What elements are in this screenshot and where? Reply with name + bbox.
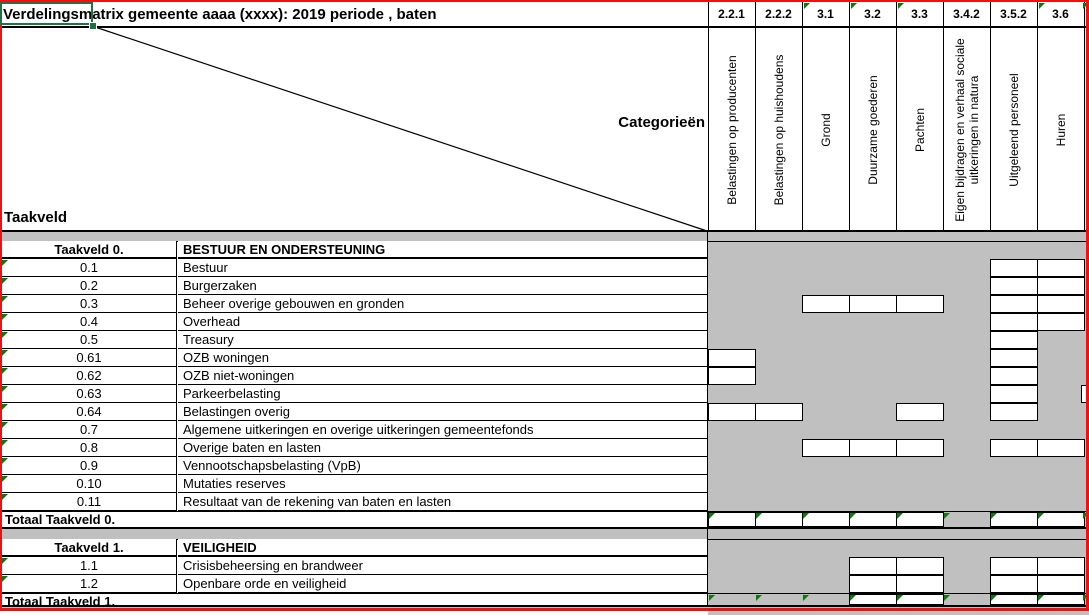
matrix-cell-open[interactable] — [849, 575, 897, 593]
matrix-cell-open[interactable] — [755, 512, 803, 527]
error-marker-icon — [2, 314, 8, 320]
error-marker-icon — [944, 513, 950, 519]
matrix-cell-open[interactable] — [896, 295, 944, 313]
column-label-cell[interactable]: Huren — [1037, 30, 1084, 230]
column-label-cell[interactable]: Uitgeleend personeel — [990, 30, 1037, 230]
taakveld-row: 0.63Parkeerbelasting — [2, 385, 707, 403]
row-name-cell[interactable]: Burgerzaken — [178, 277, 707, 295]
error-marker-icon — [2, 332, 8, 338]
column-label-cell[interactable]: Pachten — [896, 30, 943, 230]
matrix-cell-open[interactable] — [1037, 277, 1085, 295]
matrix-cell-open[interactable] — [990, 259, 1038, 277]
row-code-cell[interactable]: 1.1 — [2, 557, 177, 575]
row-name-cell[interactable]: Parkeerbelasting — [178, 385, 707, 403]
column-grid-line — [1084, 2, 1085, 232]
page-border-bottom — [0, 608, 1089, 611]
column-code-cell[interactable]: 2.2.1 — [708, 3, 755, 26]
row-name-cell[interactable]: OZB woningen — [178, 349, 707, 367]
row-name-cell[interactable]: Treasury — [178, 331, 707, 349]
section-code-cell[interactable]: Taakveld 1. — [2, 539, 177, 557]
section-header-row: Taakveld 1.VEILIGHEID — [2, 539, 707, 557]
taakveld-row: 0.2Burgerzaken — [2, 277, 707, 295]
matrix-cell-open[interactable] — [1037, 259, 1085, 277]
matrix-cell-open[interactable] — [849, 295, 897, 313]
matrix-cell-open[interactable] — [896, 557, 944, 575]
column-label-cell[interactable]: Belastingen op huishoudens — [755, 30, 802, 230]
taakveld-row: 0.61OZB woningen — [2, 349, 707, 367]
matrix-cell-open[interactable] — [1037, 575, 1085, 593]
taakveld-row: 0.62OZB niet-woningen — [2, 367, 707, 385]
total-row-label[interactable]: Totaal Taakveld 0. — [2, 512, 708, 527]
error-marker-icon — [2, 476, 8, 482]
header-bottom-border — [0, 230, 1089, 232]
matrix-cell-open[interactable] — [990, 594, 1038, 605]
error-marker-icon — [991, 513, 997, 519]
row-code-cell[interactable]: 0.4 — [2, 313, 177, 331]
column-label-text: Grond — [804, 32, 848, 228]
error-marker-icon — [850, 595, 856, 601]
matrix-cell-open[interactable] — [849, 512, 897, 527]
row-name-cell[interactable]: Belastingen overig — [178, 403, 707, 421]
error-marker-icon — [804, 3, 810, 9]
page-border-top — [0, 0, 1089, 2]
error-marker-icon — [2, 558, 8, 564]
row-name-cell[interactable]: Mutaties reserves — [178, 475, 707, 493]
error-marker-icon — [850, 513, 856, 519]
error-marker-icon — [898, 3, 904, 9]
matrix-cell-open[interactable] — [990, 403, 1038, 421]
row-code-cell[interactable]: 0.9 — [2, 457, 177, 475]
matrix-cell-open[interactable] — [1037, 557, 1085, 575]
column-label-text: Uitgeleend personeel — [992, 32, 1036, 228]
taakveld-row: 0.8Overige baten en lasten — [2, 439, 707, 457]
error-marker-icon — [2, 458, 8, 464]
matrix-cell-open[interactable] — [1037, 594, 1085, 605]
error-marker-icon — [803, 595, 809, 601]
row-code-cell[interactable]: 1.2 — [2, 575, 177, 593]
error-marker-icon — [2, 404, 8, 410]
spreadsheet: Verdelingsmatrix gemeente aaaa (xxxx): 2… — [0, 0, 1089, 615]
section-header-row: Taakveld 0.BESTUUR EN ONDERSTEUNING — [2, 241, 707, 259]
error-marker-icon — [2, 260, 8, 266]
column-label-cell[interactable]: Grond — [802, 30, 849, 230]
row-name-cell[interactable]: Beheer overige gebouwen en gronden — [178, 295, 707, 313]
column-label-text: Huren — [1039, 32, 1083, 228]
error-marker-icon — [803, 513, 809, 519]
matrix-cell-open[interactable] — [896, 594, 944, 605]
taakveld-row: 0.10Mutaties reserves — [2, 475, 707, 493]
matrix-cell-open[interactable] — [990, 575, 1038, 593]
error-marker-icon — [2, 422, 8, 428]
column-label-cell[interactable]: Duurzame goederen — [849, 30, 896, 230]
matrix-cell-open[interactable] — [990, 295, 1038, 313]
error-marker-icon — [709, 595, 715, 601]
row-code-cell[interactable]: 0.2 — [2, 277, 177, 295]
taakveld-row: 0.11Resultaat van de rekening van baten … — [2, 493, 707, 511]
matrix-cell-open[interactable] — [708, 367, 756, 385]
matrix-cell-open[interactable] — [802, 512, 850, 527]
matrix-cell-open[interactable] — [1037, 439, 1085, 457]
matrix-cell-open[interactable] — [990, 313, 1038, 331]
row-code-cell[interactable]: 0.11 — [2, 493, 177, 511]
row-code-cell[interactable]: 0.1 — [2, 259, 177, 277]
taakveld-row: 1.1Crisisbeheersing en brandweer — [2, 557, 707, 575]
section-name-cell[interactable]: BESTUUR EN ONDERSTEUNING — [178, 241, 707, 259]
section-name-cell[interactable]: VEILIGHEID — [178, 539, 707, 557]
row-name-cell[interactable]: Overhead — [178, 313, 707, 331]
row-code-cell[interactable]: 0.61 — [2, 349, 177, 367]
error-marker-icon — [1039, 3, 1045, 9]
matrix-cell-open[interactable] — [1037, 295, 1085, 313]
taakveld-row: 0.3Beheer overige gebouwen en gronden — [2, 295, 707, 313]
taakveld-row: 0.1Bestuur — [2, 259, 707, 277]
row-name-cell[interactable]: Vennootschapsbelasting (VpB) — [178, 457, 707, 475]
error-marker-icon — [2, 350, 8, 356]
error-marker-icon — [2, 440, 8, 446]
error-marker-icon — [2, 278, 8, 284]
total-row-label[interactable]: Totaal Taakveld 1. — [2, 594, 708, 605]
matrix-cell-open[interactable] — [849, 594, 897, 605]
selection-fill-handle[interactable] — [89, 22, 97, 30]
column-label-cell[interactable]: Belastingen op producenten — [708, 30, 755, 230]
taakveld-row: 0.64Belastingen overig — [2, 403, 707, 421]
matrix-left-border — [707, 232, 708, 607]
taakveld-row: 1.2Openbare orde en veiligheid — [2, 575, 707, 593]
matrix-cell-open[interactable] — [708, 349, 756, 367]
matrix-cell-open[interactable] — [849, 439, 897, 457]
column-label-text: Belastingen op huishoudens — [757, 32, 801, 228]
row-code-cell[interactable]: 0.64 — [2, 403, 177, 421]
matrix-cell-open[interactable] — [990, 557, 1038, 575]
matrix-cell-open[interactable] — [896, 439, 944, 457]
row-code-cell[interactable]: 0.62 — [2, 367, 177, 385]
column-label-cell[interactable]: Eigen bijdragen en verhaal sociale uitke… — [943, 30, 990, 230]
matrix-cell-open[interactable] — [708, 512, 756, 527]
matrix-cell-open[interactable] — [896, 512, 944, 527]
matrix-cell-open[interactable] — [990, 331, 1038, 349]
row-name-cell[interactable]: Algemene uitkeringen en overige uitkerin… — [178, 421, 707, 439]
matrix-cell-open[interactable] — [990, 277, 1038, 295]
error-marker-icon — [897, 595, 903, 601]
matrix-cell-open[interactable] — [1037, 512, 1085, 527]
taakveld-row: 0.5Treasury — [2, 331, 707, 349]
column-code-cell[interactable]: 2.2.2 — [755, 3, 802, 26]
row-name-cell[interactable]: OZB niet-woningen — [178, 367, 707, 385]
row-code-cell[interactable]: 0.63 — [2, 385, 177, 403]
taakveld-row: 0.7Algemene uitkeringen en overige uitke… — [2, 421, 707, 439]
matrix-cell-open[interactable] — [1037, 313, 1085, 331]
row-name-cell[interactable]: Bestuur — [178, 259, 707, 277]
row-code-cell[interactable]: 0.8 — [2, 439, 177, 457]
section-code-cell[interactable]: Taakveld 0. — [2, 241, 177, 259]
column-label-text: Pachten — [898, 32, 942, 228]
error-marker-icon — [991, 595, 997, 601]
row-code-cell[interactable]: 0.5 — [2, 331, 177, 349]
row-name-cell[interactable]: Openbare orde en veiligheid — [178, 575, 707, 593]
column-code-cell[interactable]: 3.5.2 — [990, 3, 1037, 26]
selection-box — [0, 2, 93, 25]
matrix-cell-open[interactable] — [990, 385, 1038, 403]
matrix-cell-open[interactable] — [990, 349, 1038, 367]
matrix-cell-open[interactable] — [896, 403, 944, 421]
matrix-cell-open[interactable] — [990, 512, 1038, 527]
matrix-cell-open[interactable] — [802, 439, 850, 457]
row-code-cell[interactable]: 0.7 — [2, 421, 177, 439]
column-label-text: Belastingen op producenten — [710, 32, 754, 228]
error-marker-icon — [1038, 595, 1044, 601]
error-marker-icon — [2, 368, 8, 374]
matrix-cell-open[interactable] — [896, 575, 944, 593]
taakveld-row: 0.9Vennootschapsbelasting (VpB) — [2, 457, 707, 475]
error-marker-icon — [2, 296, 8, 302]
matrix-cell-open[interactable] — [849, 557, 897, 575]
matrix-cell-open[interactable] — [802, 295, 850, 313]
matrix-cell-open[interactable] — [755, 403, 803, 421]
column-label-text: Eigen bijdragen en verhaal sociale uitke… — [945, 32, 989, 228]
column-code-cell[interactable]: 3.4.2 — [943, 3, 990, 26]
error-marker-icon — [2, 576, 8, 582]
error-marker-icon — [2, 386, 8, 392]
error-marker-icon — [756, 595, 762, 601]
row-code-cell[interactable]: 0.3 — [2, 295, 177, 313]
row-code-cell[interactable]: 0.10 — [2, 475, 177, 493]
error-marker-icon — [897, 513, 903, 519]
page-border-left — [0, 0, 2, 611]
matrix-cell-open[interactable] — [990, 439, 1038, 457]
error-marker-icon — [1038, 513, 1044, 519]
error-marker-icon — [709, 513, 715, 519]
error-marker-icon — [2, 494, 8, 500]
matrix-cell-open[interactable] — [990, 367, 1038, 385]
row-name-cell[interactable]: Crisisbeheersing en brandweer — [178, 557, 707, 575]
column-label-text: Duurzame goederen — [851, 32, 895, 228]
row-name-cell[interactable]: Resultaat van de rekening van baten en l… — [178, 493, 707, 511]
taakveld-row: 0.4Overhead — [2, 313, 707, 331]
row-name-cell[interactable]: Overige baten en lasten — [178, 439, 707, 457]
error-marker-icon — [851, 3, 857, 9]
error-marker-icon — [756, 513, 762, 519]
matrix-cell-open[interactable] — [708, 403, 756, 421]
error-marker-icon — [944, 595, 950, 601]
